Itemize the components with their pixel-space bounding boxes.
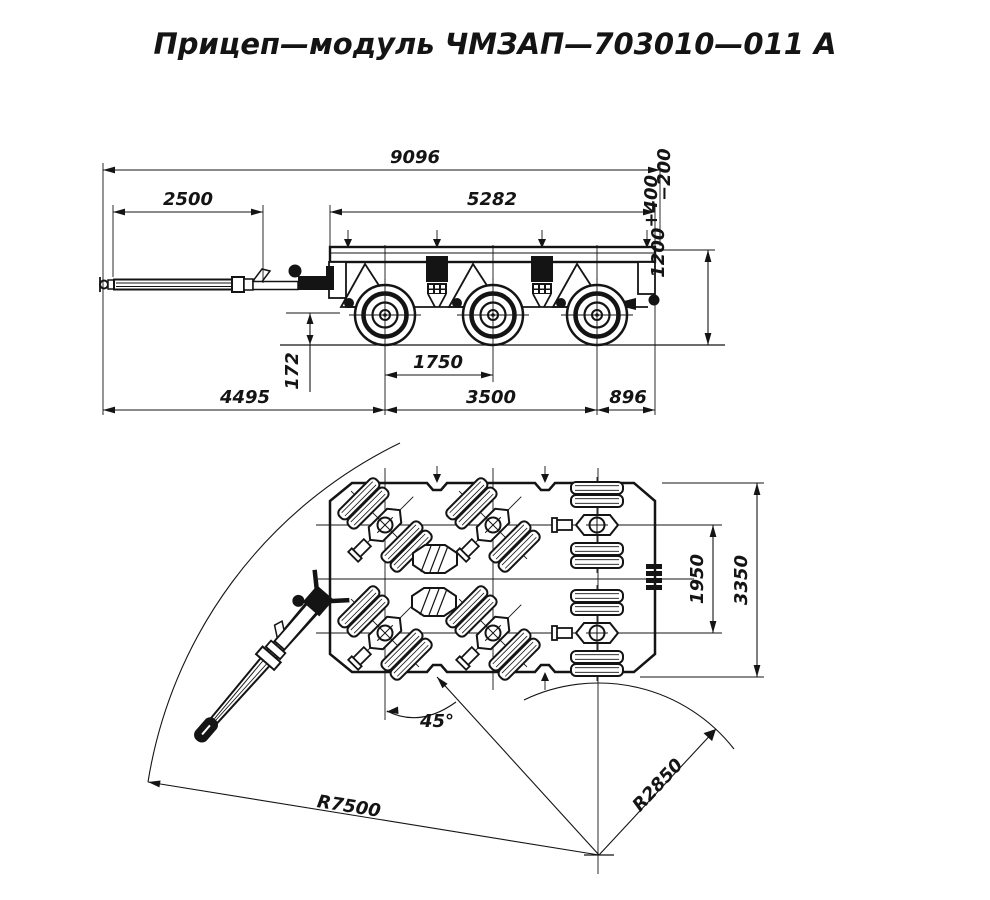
dim-platform-length: 5282 — [330, 189, 655, 212]
drawing-title: Прицеп—модуль ЧМЗАП—703010—011 А — [154, 27, 837, 61]
dim-label-r2850: R2850 — [628, 755, 687, 816]
dim-label-896: 896 — [609, 387, 647, 408]
dim-label-1950: 1950 — [687, 554, 708, 604]
trailer-drawing: Прицеп—модуль ЧМЗАП—703010—011 А — [0, 0, 990, 900]
dim-label-5282: 5282 — [467, 189, 517, 210]
side-view: 9096 2500 5282 1200+400−200 172 1750 449… — [100, 147, 725, 415]
dim-bogie-wheelbase: 3500 — [385, 387, 597, 410]
dim-outer-radius: R7500 — [148, 781, 599, 856]
dim-ground-clearance: 172 — [282, 313, 340, 392]
dim-front-section: 4495 — [103, 387, 385, 410]
dim-bogie-track: 1950 — [687, 525, 713, 633]
deck-marker-arrows — [344, 230, 651, 248]
dim-label-r7500: R7500 — [316, 791, 382, 822]
inner-turning-arc — [524, 683, 734, 749]
dim-platform-height: 1200+400−200 — [641, 148, 708, 345]
dim-label-172: 172 — [282, 352, 303, 390]
dim-drawbar-extension: 2500 — [113, 189, 263, 212]
support-pad-lower — [412, 588, 456, 616]
dim-label-45deg: 45° — [419, 711, 454, 732]
plan-view: R7500 R2850 45° 1950 3350 — [148, 443, 764, 874]
support-pad-upper — [413, 545, 457, 573]
drawbar-side — [100, 265, 334, 293]
dim-label-9096: 9096 — [390, 147, 440, 168]
dim-label-4495: 4495 — [219, 387, 270, 408]
dim-inner-radius: R2850 — [599, 729, 716, 855]
dim-steering-angle: 45° — [386, 677, 599, 855]
dim-overall-width: 3350 — [731, 483, 757, 677]
hydraulic-cylinder-front — [426, 256, 448, 307]
dim-label-3350: 3350 — [731, 555, 752, 605]
dim-label-2500: 2500 — [163, 189, 213, 210]
drawbar-plan — [179, 570, 349, 756]
dim-overall-length: 9096 — [103, 147, 660, 170]
dim-rear-overhang: 896 — [597, 387, 655, 410]
hydraulic-cylinder-rear — [531, 256, 553, 307]
drawing-sheet: Прицеп—модуль ЧМЗАП—703010—011 А — [0, 0, 990, 900]
dim-label-1750: 1750 — [413, 352, 463, 373]
dim-label-3500: 3500 — [466, 387, 516, 408]
dim-axle-spacing: 1750 — [385, 352, 493, 375]
rear-bumper — [649, 295, 660, 306]
